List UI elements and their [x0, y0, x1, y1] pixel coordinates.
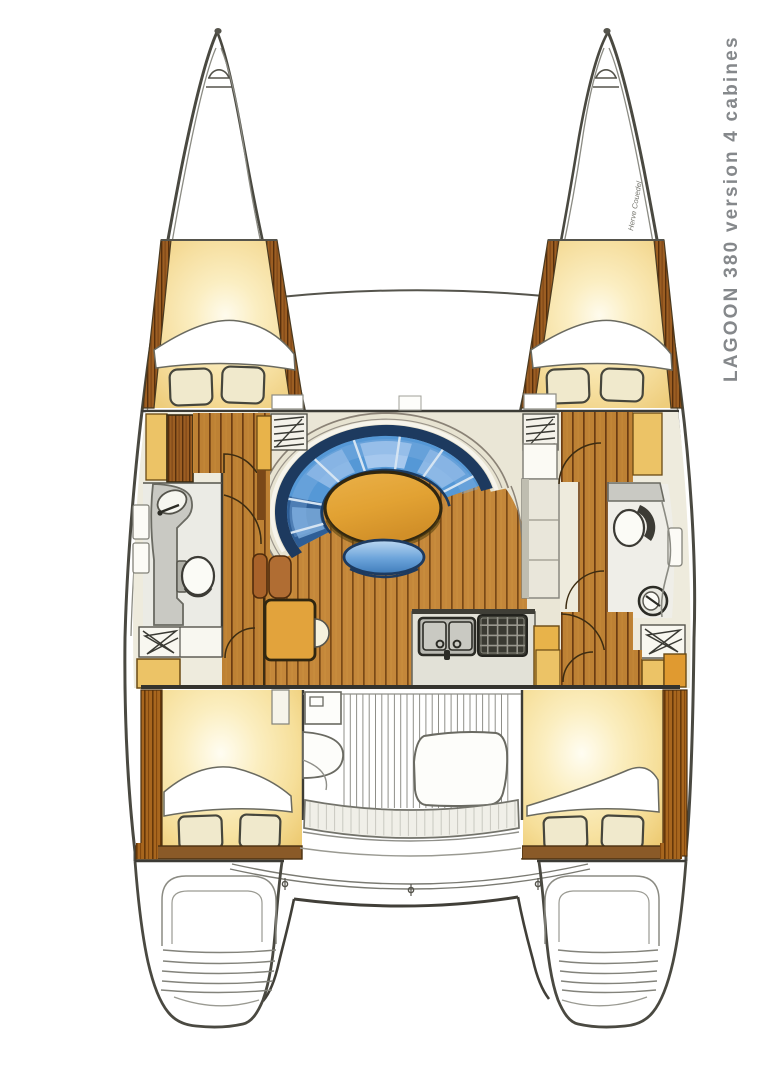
svg-text:LAGOON 380 version 4 cabines: LAGOON 380 version 4 cabines — [721, 35, 742, 382]
